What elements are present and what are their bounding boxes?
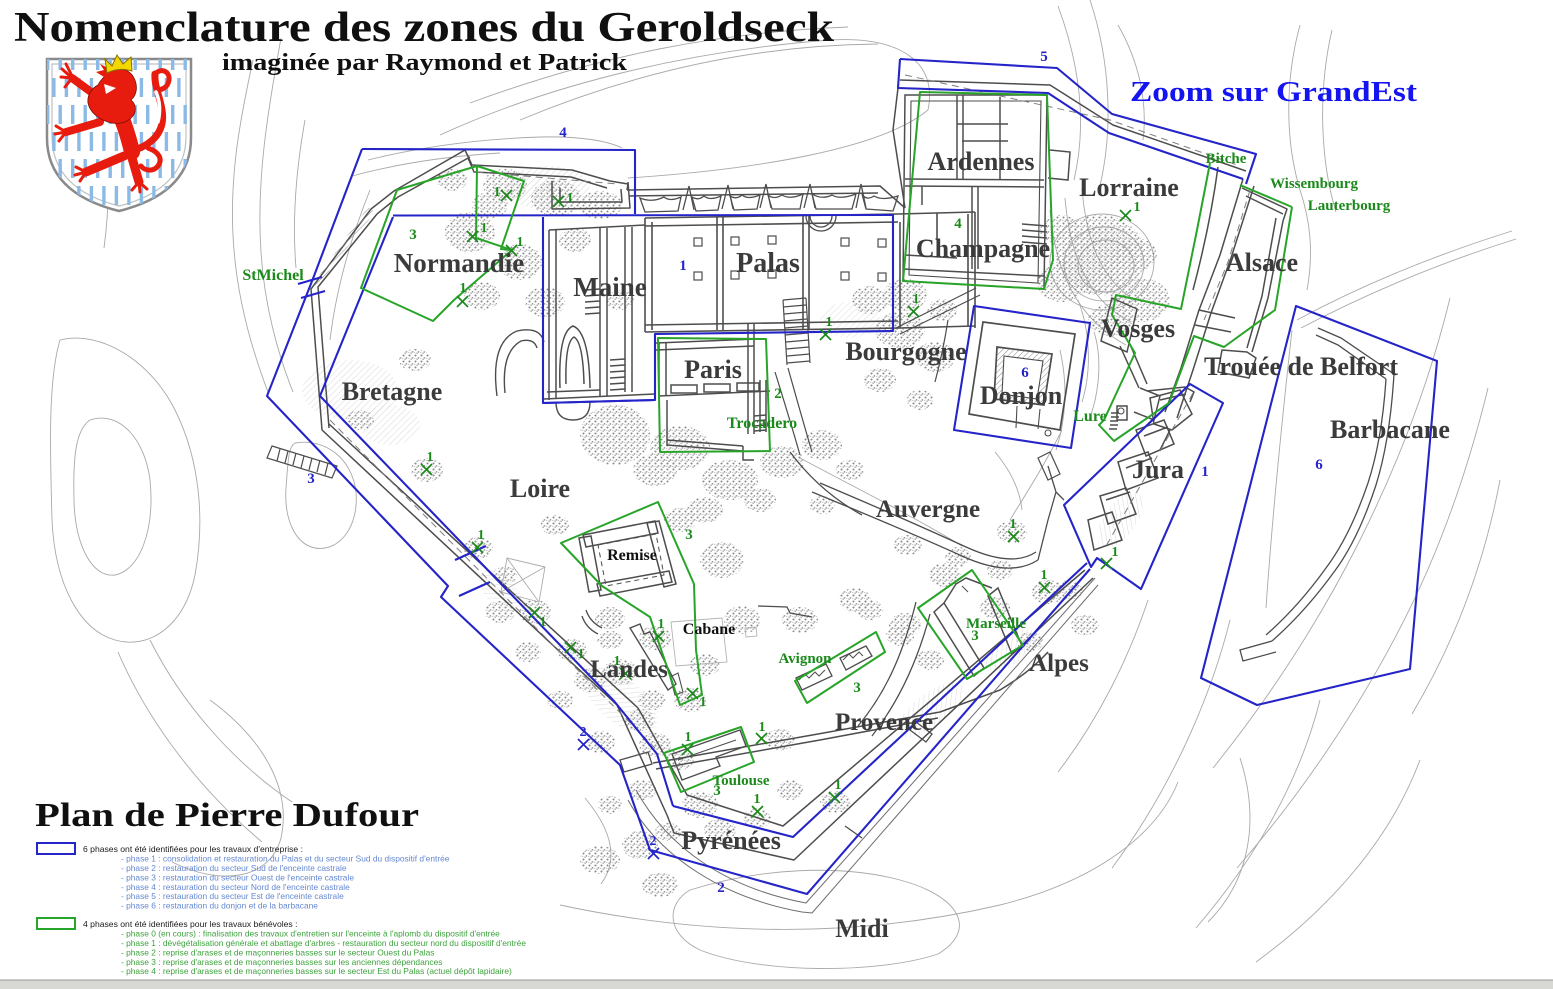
svg-text:Zoom sur GrandEst: Zoom sur GrandEst [1130,76,1417,108]
svg-text:1: 1 [494,185,501,200]
svg-text:1: 1 [567,191,574,206]
svg-text:1: 1 [700,695,707,710]
svg-text:Wissembourg: Wissembourg [1270,176,1359,192]
svg-text:1: 1 [460,281,467,296]
svg-text:1: 1 [835,778,842,793]
svg-text:1: 1 [1134,200,1141,215]
svg-text:1: 1 [1041,568,1048,583]
svg-text:Ardennes: Ardennes [928,147,1035,176]
svg-text:3: 3 [685,527,693,543]
svg-text:Lure: Lure [1073,408,1106,425]
svg-text:3: 3 [409,227,417,243]
svg-text:6: 6 [1315,457,1323,473]
svg-text:1: 1 [826,315,833,330]
svg-text:3: 3 [307,471,315,487]
svg-text:2: 2 [650,834,657,849]
svg-text:imaginée par Raymond et Patric: imaginée par Raymond et Patrick [222,50,628,76]
svg-text:1: 1 [913,292,920,307]
svg-text:Champagne: Champagne [916,234,1050,263]
svg-text:2: 2 [717,880,725,896]
svg-text:Nomenclature des zones du Gero: Nomenclature des zones du Geroldseck [14,5,835,51]
svg-text:Vosges: Vosges [1101,314,1175,343]
svg-text:Bretagne: Bretagne [342,377,443,406]
svg-text:Lauterbourg: Lauterbourg [1308,198,1391,214]
svg-text:5: 5 [1040,49,1048,65]
svg-text:1: 1 [754,792,761,807]
svg-text:- phase 0 (en cours) : finalis: - phase 0 (en cours) : finalisation des … [121,929,500,939]
svg-text:4: 4 [954,216,962,232]
svg-text:Trouée de Belfort: Trouée de Belfort [1204,352,1398,381]
svg-text:Palas: Palas [736,248,800,279]
svg-text:Jura: Jura [1132,455,1184,484]
svg-text:StMichel: StMichel [242,267,304,284]
svg-text:1: 1 [578,647,585,662]
svg-text:Donjon: Donjon [980,381,1063,410]
svg-text:Pyrénées: Pyrénées [681,826,781,855]
svg-text:4: 4 [559,125,567,141]
svg-text:1: 1 [1201,464,1209,480]
svg-text:6 phases ont été identifiées p: 6 phases ont été identifiées pour les tr… [83,844,303,854]
svg-text:Paris: Paris [684,355,742,384]
svg-text:1: 1 [1112,545,1119,560]
svg-text:4 phases ont été identifiées p: 4 phases ont été identifiées pour les tr… [83,919,298,929]
svg-text:Alpes: Alpes [1029,650,1089,677]
svg-text:1: 1 [679,258,687,274]
svg-text:Provence: Provence [835,709,933,736]
svg-text:Normandie: Normandie [394,248,525,278]
svg-text:2: 2 [580,725,587,740]
svg-text:- phase 4 : reprise d'arases e: - phase 4 : reprise d'arases et de maçon… [121,966,512,976]
svg-text:Loire: Loire [510,474,570,503]
svg-text:Cabane: Cabane [683,621,735,638]
svg-text:Auvergne: Auvergne [876,496,980,523]
svg-text:Avignon: Avignon [778,651,832,667]
svg-text:Alsace: Alsace [1226,248,1298,277]
svg-text:3: 3 [853,680,861,696]
svg-text:1: 1 [658,617,665,632]
svg-text:1: 1 [759,720,766,735]
svg-text:1: 1 [427,450,434,465]
svg-text:Bourgogne: Bourgogne [845,337,966,366]
svg-text:Trocadero: Trocadero [727,415,797,432]
svg-text:1: 1 [1010,517,1017,532]
svg-text:2: 2 [774,386,782,402]
svg-text:- phase 1 : consolidation et r: - phase 1 : consolidation et restauratio… [121,854,450,864]
svg-text:Bitche: Bitche [1206,151,1247,167]
svg-text:Landes: Landes [590,656,668,683]
svg-text:Plan de Pierre Dufour: Plan de Pierre Dufour [35,797,419,834]
svg-text:Remise: Remise [607,547,657,564]
svg-text:1: 1 [478,528,485,543]
svg-text:Barbacane: Barbacane [1330,415,1450,444]
svg-text:6: 6 [1021,365,1029,381]
svg-text:Marseille: Marseille [966,616,1026,632]
svg-text:1: 1 [481,221,488,236]
svg-text:- phase 6 : restauration du do: - phase 6 : restauration du donjon et de… [121,901,318,911]
svg-text:Toulouse: Toulouse [713,773,770,789]
svg-text:Midi: Midi [835,914,888,943]
svg-text:Maine: Maine [573,272,647,302]
svg-text:1: 1 [685,730,692,745]
svg-text:Lorraine: Lorraine [1079,173,1179,202]
svg-text:1: 1 [540,615,547,630]
